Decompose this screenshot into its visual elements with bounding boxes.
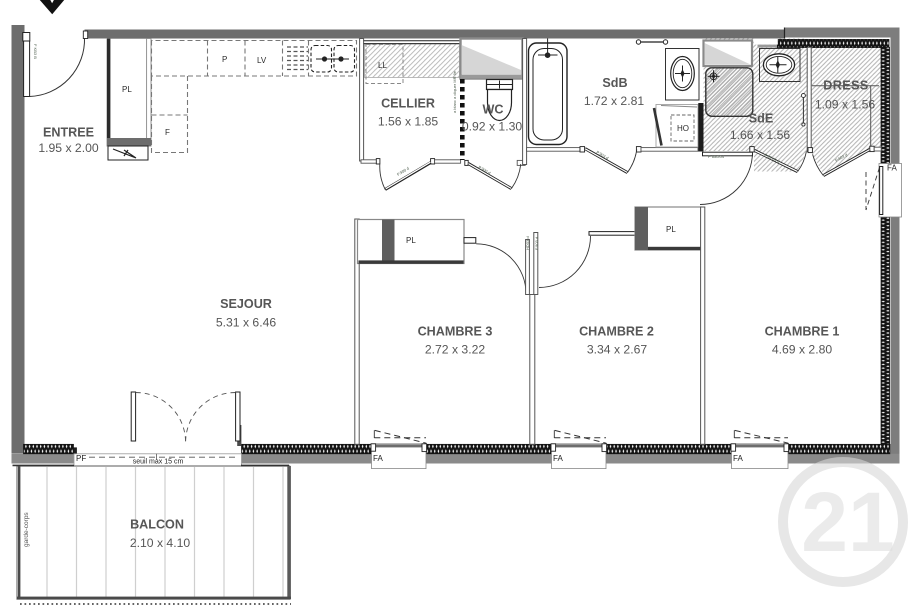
- svg-text:2.10 x 4.10: 2.10 x 4.10: [130, 536, 191, 550]
- svg-text:PL: PL: [406, 236, 416, 245]
- svg-text:PL: PL: [666, 225, 676, 234]
- svg-text:BALCON: BALCON: [130, 518, 184, 532]
- svg-text:21: 21: [801, 475, 894, 569]
- svg-text:P 65/204: P 65/204: [708, 154, 725, 159]
- svg-text:PL: PL: [122, 85, 132, 94]
- svg-text:HO: HO: [677, 124, 689, 133]
- svg-text:CHAMBRE 2: CHAMBRE 2: [579, 325, 654, 339]
- svg-text:0.92 x 1.30: 0.92 x 1.30: [462, 120, 523, 134]
- svg-text:CELLIER: CELLIER: [381, 97, 435, 111]
- svg-text:LV: LV: [257, 56, 267, 65]
- svg-text:3.34 x 2.67: 3.34 x 2.67: [587, 343, 648, 357]
- svg-text:garde-corps: garde-corps: [23, 512, 30, 547]
- svg-text:FA: FA: [373, 454, 383, 463]
- svg-text:1.09 x 1.56: 1.09 x 1.56: [815, 98, 876, 112]
- svg-text:1.95 x 2.00: 1.95 x 2.00: [38, 141, 99, 155]
- svg-text:a blanc a cliquer MR 9e: a blanc a cliquer MR 9e: [452, 70, 457, 113]
- svg-text:F: F: [165, 128, 170, 137]
- svg-text:LL: LL: [378, 61, 387, 70]
- svg-text:SdE: SdE: [749, 112, 774, 126]
- svg-text:HD03 d: HD03 d: [525, 236, 530, 250]
- svg-text:FA: FA: [733, 454, 743, 463]
- svg-text:2.72 x 3.22: 2.72 x 3.22: [425, 343, 486, 357]
- svg-text:4.69 x 2.80: 4.69 x 2.80: [772, 343, 833, 357]
- svg-text:DRESS: DRESS: [823, 79, 868, 93]
- svg-text:seuil max 15 cm: seuil max 15 cm: [133, 459, 184, 466]
- svg-text:5.31 x 6.46: 5.31 x 6.46: [216, 316, 277, 330]
- svg-text:1.56 x 1.85: 1.56 x 1.85: [378, 115, 439, 129]
- svg-text:CHAMBRE 3: CHAMBRE 3: [418, 325, 493, 339]
- svg-text:SdB: SdB: [602, 76, 627, 90]
- svg-text:P: P: [222, 55, 227, 64]
- svg-text:F.903 d: F.903 d: [534, 237, 539, 250]
- svg-text:SEJOUR: SEJOUR: [220, 297, 272, 311]
- svg-text:FA: FA: [887, 164, 897, 173]
- svg-text:WC: WC: [483, 103, 504, 117]
- svg-text:ENTREE: ENTREE: [43, 126, 94, 140]
- svg-text:CHAMBRE 1: CHAMBRE 1: [765, 325, 840, 339]
- svg-text:PF: PF: [76, 454, 86, 463]
- svg-text:1.72 x 2.81: 1.72 x 2.81: [584, 94, 645, 108]
- svg-text:F KB3 B: F KB3 B: [33, 44, 38, 59]
- svg-text:1.66 x 1.56: 1.66 x 1.56: [730, 128, 791, 142]
- svg-text:FA: FA: [553, 454, 563, 463]
